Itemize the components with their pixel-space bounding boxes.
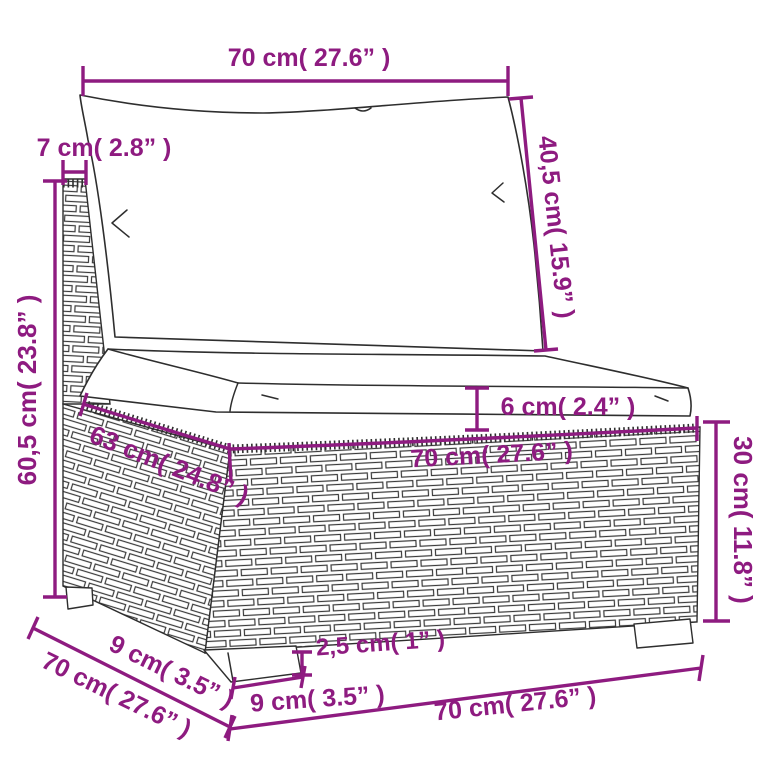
diagram-canvas: 70 cm( 27.6” ) 7 cm( 2.8” ) 40,5 cm( 15.…	[0, 0, 767, 767]
dim-label-overall-width: 70 cm( 27.6” )	[433, 682, 598, 727]
dimension-diagram: 70 cm( 27.6” ) 7 cm( 2.8” ) 40,5 cm( 15.…	[0, 0, 767, 767]
front-left-leg	[204, 646, 301, 682]
dim-overall-height: 60,5 cm( 23.8” )	[12, 181, 67, 597]
dim-base-height: 30 cm( 11.8” )	[703, 422, 758, 621]
dim-label-base-height: 30 cm( 11.8” )	[728, 436, 758, 604]
dim-label-overall-height: 60,5 cm( 23.8” )	[12, 295, 42, 486]
dim-label-back-width: 70 cm( 27.6” )	[228, 44, 391, 72]
dim-label-frame-depth: 7 cm( 2.8” )	[37, 134, 172, 162]
sofa-line-drawing	[63, 95, 700, 682]
front-right-leg	[634, 619, 693, 648]
back-left-leg	[66, 587, 93, 609]
dim-back-width: 70 cm( 27.6” )	[83, 44, 508, 96]
dim-label-cushion-thickness: 6 cm( 2.4” )	[501, 393, 636, 421]
